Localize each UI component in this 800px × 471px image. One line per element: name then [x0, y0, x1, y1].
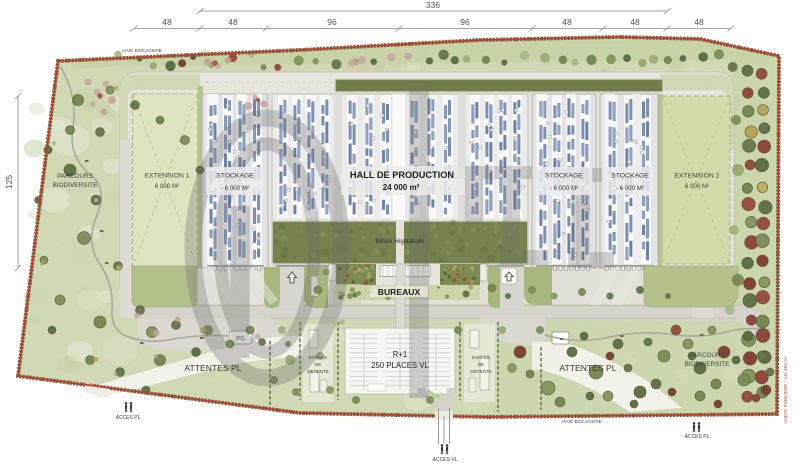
svg-text:- 6 000 M²: - 6 000 M² [221, 185, 249, 192]
svg-text:HAIE BOCAGERE: HAIE BOCAGERE [562, 419, 602, 425]
svg-text:48: 48 [228, 17, 238, 27]
svg-text:48: 48 [162, 17, 172, 27]
svg-text:DE: DE [478, 362, 484, 367]
svg-text:STOCKAGE: STOCKAGE [545, 173, 583, 180]
svg-text:DETENTE: DETENTE [307, 369, 328, 374]
svg-text:96: 96 [460, 17, 470, 27]
svg-text:250 PLACES VL: 250 PLACES VL [371, 361, 429, 370]
svg-text:toiture végétalisée: toiture végétalisée [376, 239, 425, 245]
svg-text:- 6 000 M²: - 6 000 M² [550, 185, 578, 192]
svg-text:ACCES PL: ACCES PL [685, 434, 710, 440]
svg-text:96: 96 [327, 17, 337, 27]
svg-text:HALL DE PRODUCTION: HALL DE PRODUCTION [350, 170, 454, 180]
svg-text:PARCOURS: PARCOURS [57, 173, 93, 180]
svg-text:48: 48 [630, 17, 640, 27]
svg-text:6 000 M²: 6 000 M² [155, 183, 179, 190]
svg-text:24 000 m²: 24 000 m² [383, 183, 420, 192]
svg-text:STOCKAGE: STOCKAGE [216, 173, 254, 180]
svg-text:HAIE BOCAGERE: HAIE BOCAGERE [122, 48, 162, 54]
svg-text:LIMITE FONCIERE : 141 864 m²: LIMITE FONCIERE : 141 864 m² [783, 356, 788, 423]
svg-text:DE: DE [315, 362, 321, 367]
svg-text:ESPACE: ESPACE [309, 355, 327, 360]
svg-text:EXTENSION 2: EXTENSION 2 [675, 173, 720, 180]
svg-text:PARCOURS: PARCOURS [689, 352, 725, 359]
svg-text:STOCKAGE: STOCKAGE [611, 173, 649, 180]
svg-text:DETENTE: DETENTE [470, 369, 491, 374]
svg-text:BIODIVERSITE: BIODIVERSITE [53, 182, 98, 189]
svg-text:336: 336 [426, 0, 440, 10]
svg-text:6 000 M²: 6 000 M² [685, 183, 709, 190]
svg-text:125: 125 [4, 175, 14, 189]
svg-text:ATTENTES PL: ATTENTES PL [559, 363, 616, 373]
svg-text:48: 48 [562, 17, 572, 27]
svg-text:ATTENTES PL: ATTENTES PL [184, 363, 241, 373]
svg-text:ACCES PL: ACCES PL [116, 415, 141, 421]
svg-text:EXTENSION 1: EXTENSION 1 [145, 173, 190, 180]
svg-text:- 6 000 M²: - 6 000 M² [616, 185, 644, 192]
svg-text:ESPACE: ESPACE [472, 355, 490, 360]
svg-text:ACCES VL: ACCES VL [433, 457, 458, 463]
svg-text:48: 48 [694, 17, 704, 27]
svg-text:BIODIVERSITE: BIODIVERSITE [685, 361, 730, 368]
svg-text:R+1: R+1 [393, 350, 408, 359]
svg-text:BUREAUX: BUREAUX [378, 287, 421, 297]
